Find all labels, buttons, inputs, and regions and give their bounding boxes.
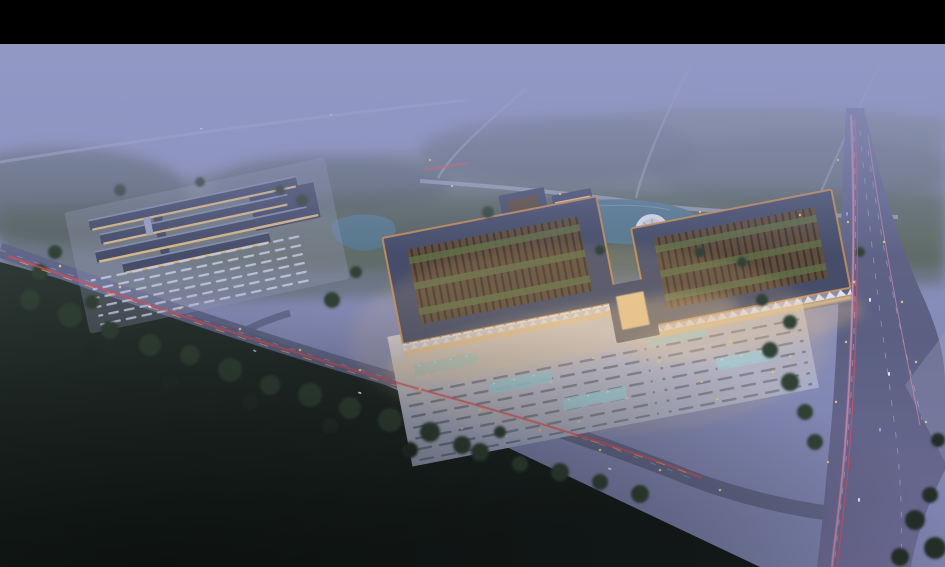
vignette [0,240,945,567]
aerial-architectural-rendering [0,0,945,567]
letterbox-top [0,0,945,44]
